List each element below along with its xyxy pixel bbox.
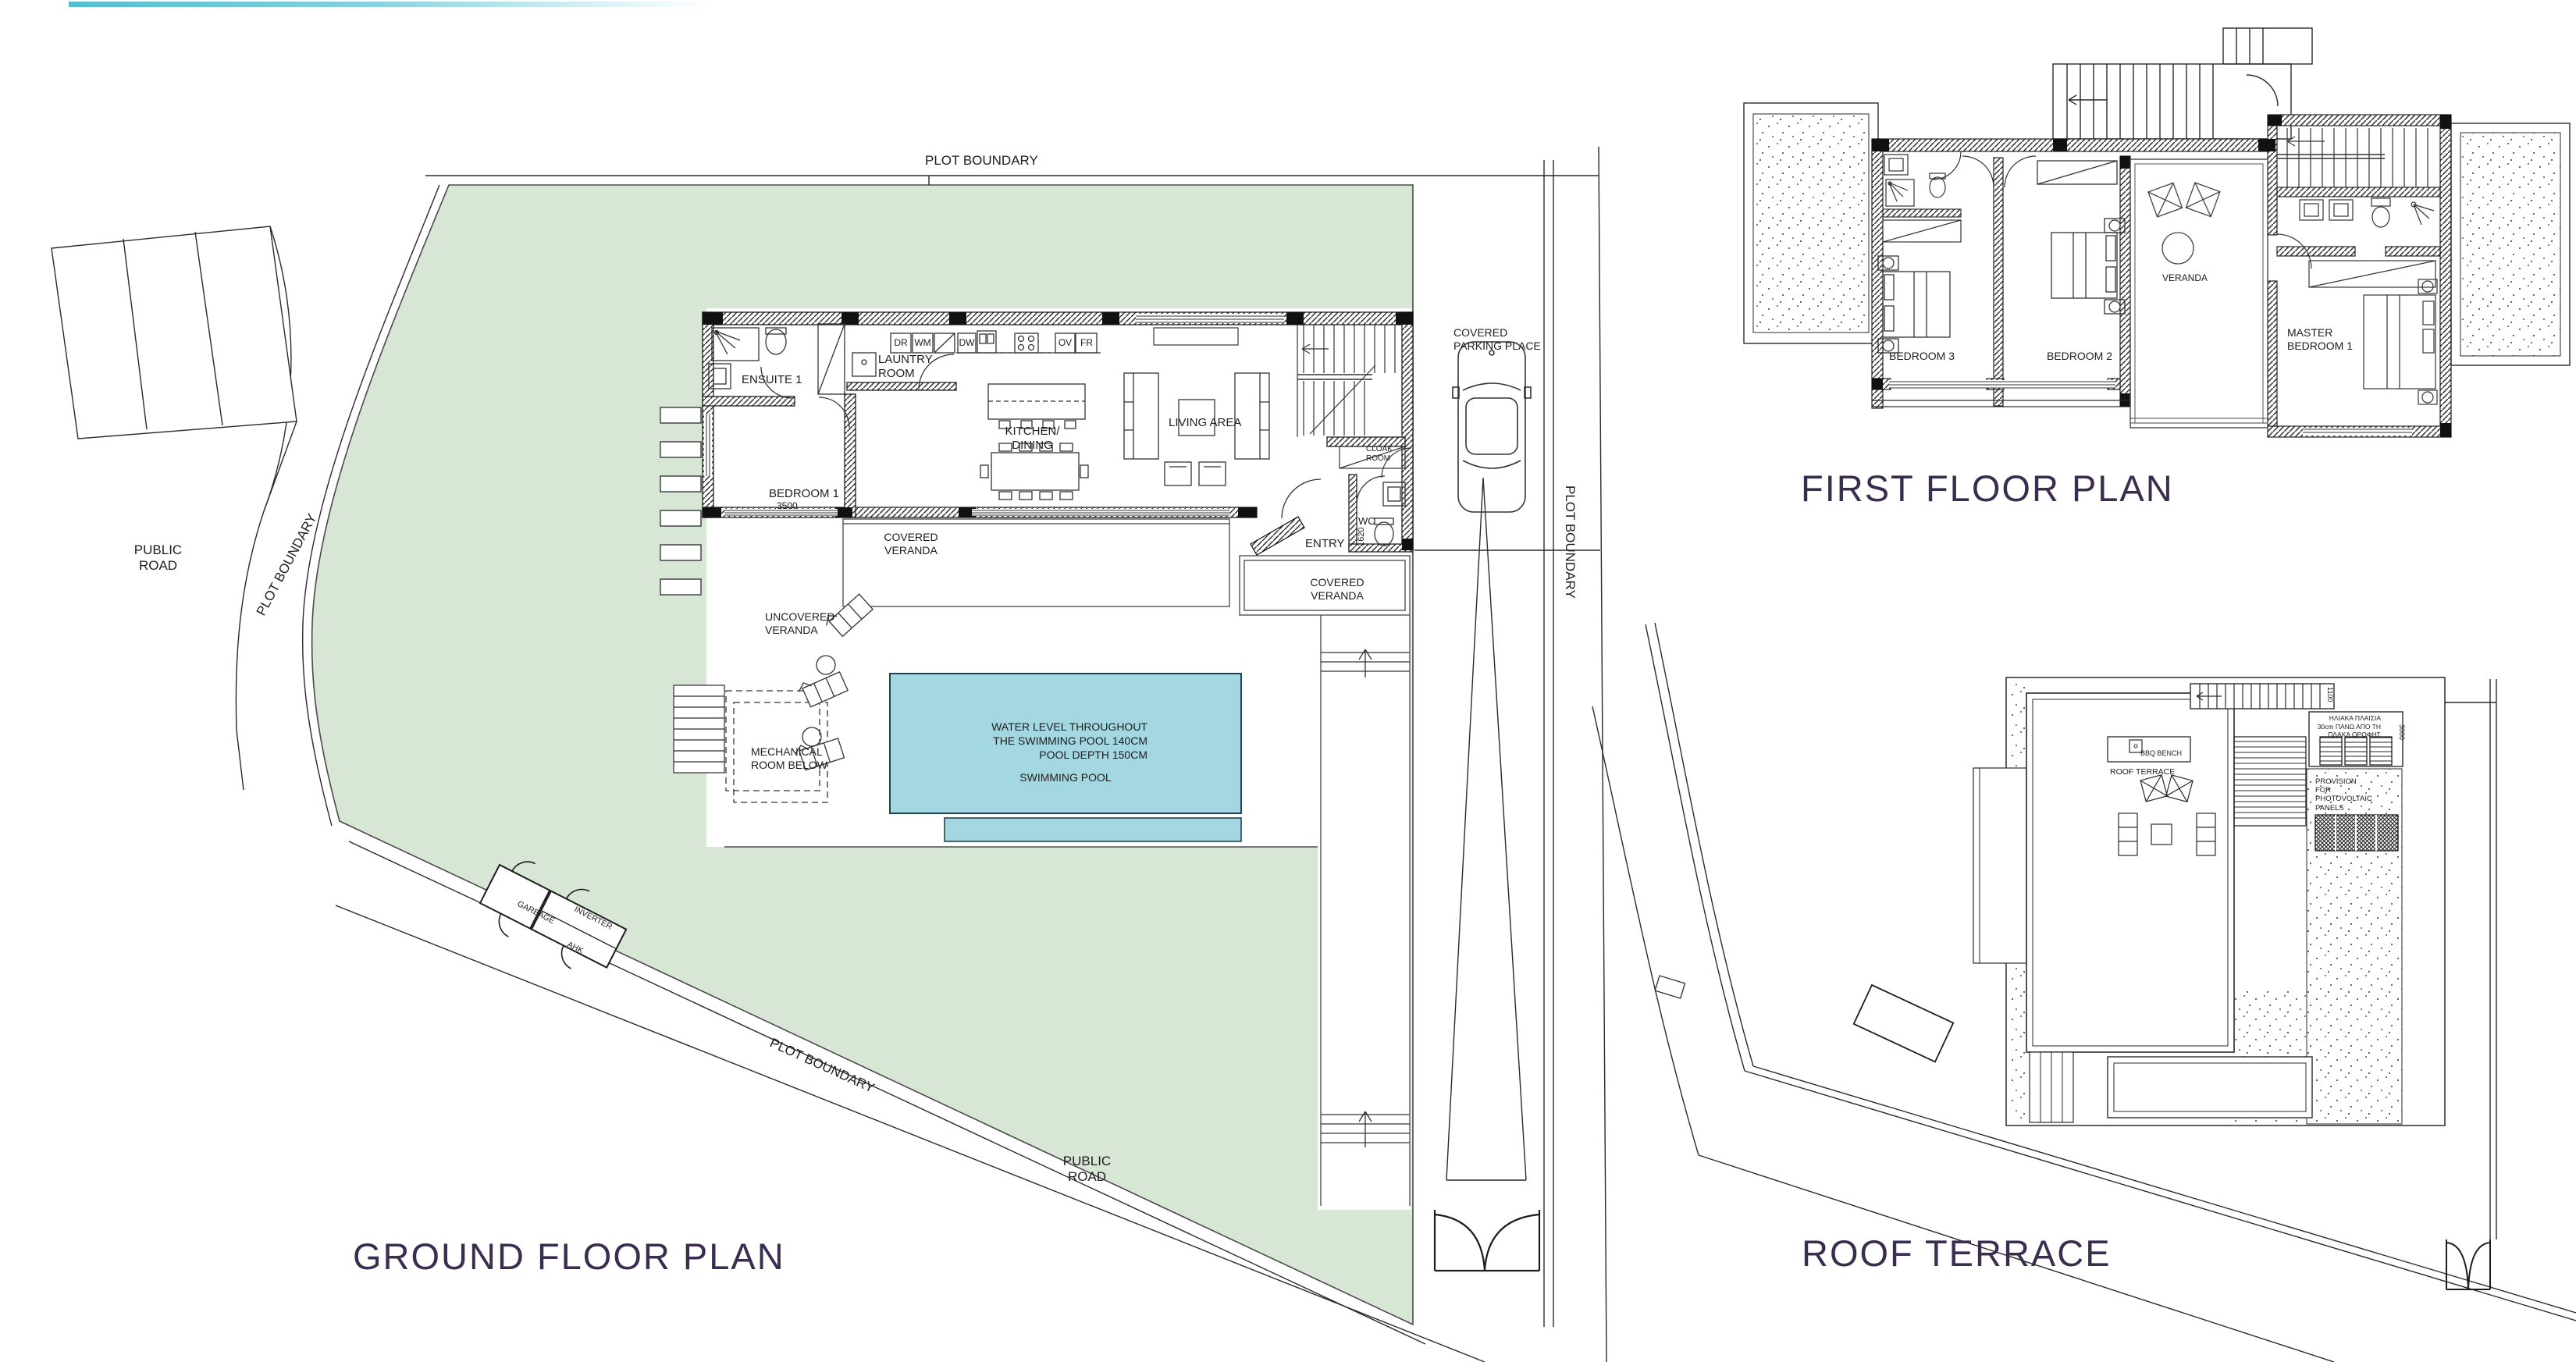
plot-boundary-right-label: PLOT BOUNDARY	[1563, 485, 1578, 599]
greek-note-line2: 30cm ΠΑΝΩ ΑΠΟ ΤΗ	[2295, 723, 2381, 731]
roof-louvres	[2234, 737, 2306, 826]
car	[1453, 342, 1531, 512]
public-road-left-label: PUBLIC ROAD	[121, 542, 195, 574]
veranda-label: VERANDA	[2162, 272, 2208, 283]
driveway-marking	[1446, 478, 1526, 1180]
pv-provision-label: PROVISION FOR PHOTOVOLTAIC PANELS	[2315, 777, 2371, 813]
pool-note-line2: THE SWIMMING POOL 140CM	[980, 734, 1147, 748]
uncovered-veranda-label: UNCOVERED VERANDA	[765, 610, 839, 636]
master-bedroom-label: MASTER BEDROOM 1	[2287, 326, 2361, 352]
bedroom1-dimension: 3500	[777, 500, 798, 511]
fridge-label: FR	[1076, 337, 1097, 348]
ff-bed3	[1878, 256, 1950, 353]
mechanical-room-label: MECHANICAL ROOM BELOW	[751, 745, 833, 771]
roof-terrace-room	[2026, 693, 2234, 1052]
greek-note-line3: ΠΛΑΚΑ ΟΡΟΦΗΣ	[2295, 731, 2381, 739]
wc-dimension: 1620	[1357, 528, 1366, 546]
greek-note-line1: ΗΛΙΑΚΑ ΠΛΑΙΣΙΑ	[2295, 714, 2381, 723]
covered-veranda-right-label: COVERED VERANDA	[1305, 576, 1369, 602]
bbq-bench-label: BBQ BENCH	[2140, 749, 2182, 758]
bedroom2-label: BEDROOM 2	[2047, 350, 2112, 363]
bedroom3-label: BEDROOM 3	[1889, 350, 1955, 363]
pv-panels-block	[2315, 815, 2398, 851]
bedroom1-label: BEDROOM 1	[769, 487, 839, 501]
pool-note-line1: WATER LEVEL THROUGHOUT	[980, 720, 1147, 734]
wc-label: WC	[1358, 515, 1375, 527]
entry-label: ENTRY	[1305, 537, 1345, 551]
neighbour-plot	[52, 226, 297, 511]
swimming-pool-label: SWIMMING POOL	[1015, 771, 1116, 784]
ensuite-label: ENSUITE 1	[742, 373, 802, 387]
pool-note-line3: POOL DEPTH 150CM	[980, 748, 1147, 762]
roof-site-gate	[2446, 1239, 2490, 1289]
entrance-gate	[1435, 1210, 1539, 1271]
roof-terrace-label: ROOF TERRACE	[2110, 767, 2175, 777]
first-floor-title: FIRST FLOOR PLAN	[1801, 467, 2174, 510]
ff-bath3	[1883, 151, 1961, 242]
floor-plans-drawing: PLOT BOUNDARY PLOT BOUNDARY PLOT BOUNDAR…	[0, 0, 2576, 1362]
ground-floor-title: GROUND FLOOR PLAN	[353, 1235, 785, 1278]
laundry-label: LAUNTRY ROOM	[878, 353, 941, 380]
cloak-room-label: CLOAK ROOM	[1366, 445, 1404, 464]
solar-dimension: 3000	[2398, 724, 2406, 740]
roof-stair	[2190, 684, 2334, 709]
dryer-label: DR	[891, 337, 910, 348]
roof-stair-dimension: 1100	[2326, 687, 2334, 702]
first-floor-plan	[1744, 28, 2570, 804]
kitchen-dining-label: KITCHEN/ DINING	[999, 425, 1066, 452]
living-area-label: LIVING AREA	[1169, 416, 1241, 430]
pool-note: WATER LEVEL THROUGHOUT THE SWIMMING POOL…	[980, 720, 1147, 763]
covered-parking-label: COVERED PARKING PLACE	[1453, 326, 1553, 352]
ff-master-wing	[2277, 128, 2437, 404]
covered-veranda-left-label: COVERED VERANDA	[879, 531, 943, 557]
plot-boundary-top-label: PLOT BOUNDARY	[925, 153, 1038, 169]
ff-bed2	[2037, 161, 2125, 314]
washing-machine-label: WM	[913, 337, 933, 348]
drawing-sheet: PLOT BOUNDARY PLOT BOUNDARY PLOT BOUNDAR…	[0, 0, 2576, 1362]
public-road-bottom-label: PUBLIC ROAD	[1050, 1154, 1124, 1185]
oven-label: OV	[1055, 337, 1075, 348]
roof-terrace-title: ROOF TERRACE	[1802, 1232, 2112, 1275]
dishwasher-label: DW	[957, 337, 977, 348]
greek-solar-note: ΗΛΙΑΚΑ ΠΛΑΙΣΙΑ 30cm ΠΑΝΩ ΑΠΟ ΤΗ ΠΛΑΚΑ ΟΡ…	[2295, 714, 2381, 739]
garden-steps	[674, 685, 724, 773]
